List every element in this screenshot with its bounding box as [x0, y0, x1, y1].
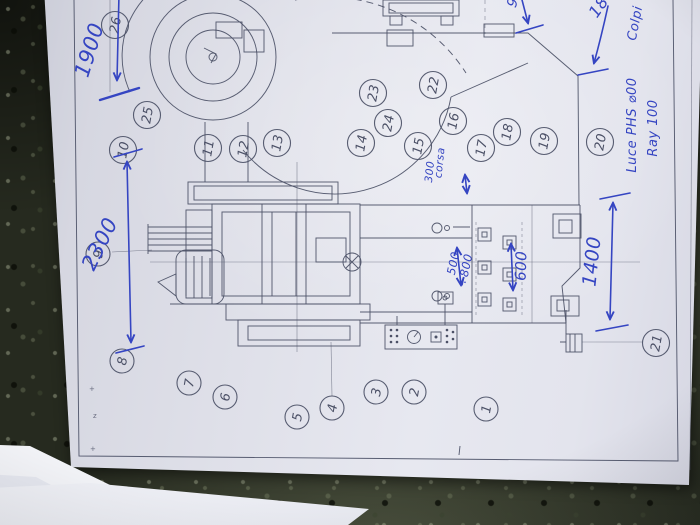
balloon-number: 17 — [473, 138, 491, 158]
balloon-14: 14 — [348, 130, 375, 157]
balloon-18: 18 — [494, 119, 521, 146]
balloon-15: 15 — [405, 133, 432, 160]
hand-note-1400: 1400 — [578, 235, 605, 287]
balloon-19: 19 — [531, 128, 558, 155]
balloon-13: 13 — [264, 130, 291, 157]
balloon-number: 3 — [369, 387, 385, 398]
balloon-number: 16 — [445, 112, 463, 131]
edge-mark: + — [89, 385, 95, 393]
balloon-6: 6 — [213, 385, 237, 409]
balloon-3: 3 — [364, 380, 388, 404]
hand-note-300: 300 — [423, 160, 437, 183]
balloon-number: 4 — [325, 403, 341, 414]
hand-note-18: 18 — [585, 0, 613, 21]
balloon-number: 25 — [139, 106, 157, 125]
balloon-number: 11 — [200, 139, 218, 158]
balloon-number: 24 — [380, 114, 398, 133]
hand-note-2300: 2300 — [77, 214, 123, 274]
photo-of-technical-drawing: 2625101112132322241614151718192098765432… — [0, 0, 700, 525]
balloon-8: 8 — [110, 349, 134, 373]
balloon-10: 10 — [110, 137, 137, 164]
balloon-number: 2 — [407, 387, 423, 398]
balloon-number: 21 — [648, 334, 666, 353]
balloon-number: 10 — [115, 141, 133, 160]
balloon-1: 1 — [474, 397, 498, 421]
balloon-7: 7 — [177, 371, 201, 395]
balloon-number: 19 — [536, 132, 554, 151]
balloon-22: 22 — [420, 72, 447, 99]
hand-note-Luce-PHS-00: Luce PHS ⌀00 — [625, 77, 640, 172]
balloon-number: 12 — [235, 140, 253, 159]
edge-mark: z — [93, 412, 97, 420]
motor-top — [332, 0, 579, 205]
balloon-number: 8 — [115, 356, 131, 367]
hand-note-Ray-100: Ray 100 — [646, 99, 661, 156]
balloon-number: 26 — [107, 16, 125, 35]
balloon-21: 21 — [643, 330, 670, 357]
hand-note-9: 9 — [504, 0, 522, 10]
tiny-edge-marks: +z+ — [89, 385, 97, 453]
balloon-2: 2 — [402, 380, 426, 404]
balloon-20: 20 — [587, 129, 614, 156]
control-panel — [385, 292, 457, 349]
balloon-5: 5 — [285, 405, 309, 429]
balloon-25: 25 — [134, 102, 161, 129]
balloon-11: 11 — [195, 135, 222, 162]
technical-drawing: 2625101112132322241614151718192098765432… — [0, 0, 700, 525]
flywheel-assembly — [122, 0, 528, 194]
balloon-number: 20 — [592, 133, 610, 152]
balloon-17: 17 — [468, 135, 495, 162]
balloon-number: 1 — [479, 404, 495, 415]
hand-note-Colpi: Colpi — [625, 5, 646, 42]
balloon-number: 5 — [290, 412, 306, 423]
balloon-number: 22 — [425, 76, 443, 95]
left-rails — [148, 224, 212, 254]
hand-note-600: 600 — [511, 250, 530, 281]
balloon-12: 12 — [230, 136, 257, 163]
balloon-number: 6 — [218, 392, 234, 403]
balloon-number: 7 — [182, 377, 198, 388]
reference-lines — [110, 0, 643, 396]
balloon-number: 18 — [499, 123, 517, 142]
balloon-23: 23 — [360, 80, 387, 107]
hand-note-1900: 1900 — [70, 20, 109, 80]
balloon-number: 13 — [269, 134, 287, 153]
balloon-number: 23 — [365, 84, 383, 103]
balloon-24: 24 — [375, 110, 402, 137]
edge-mark: + — [90, 445, 96, 453]
balloon-number: 14 — [353, 134, 371, 153]
balloon-4: 4 — [320, 396, 344, 420]
balloon-number: 15 — [410, 137, 428, 156]
